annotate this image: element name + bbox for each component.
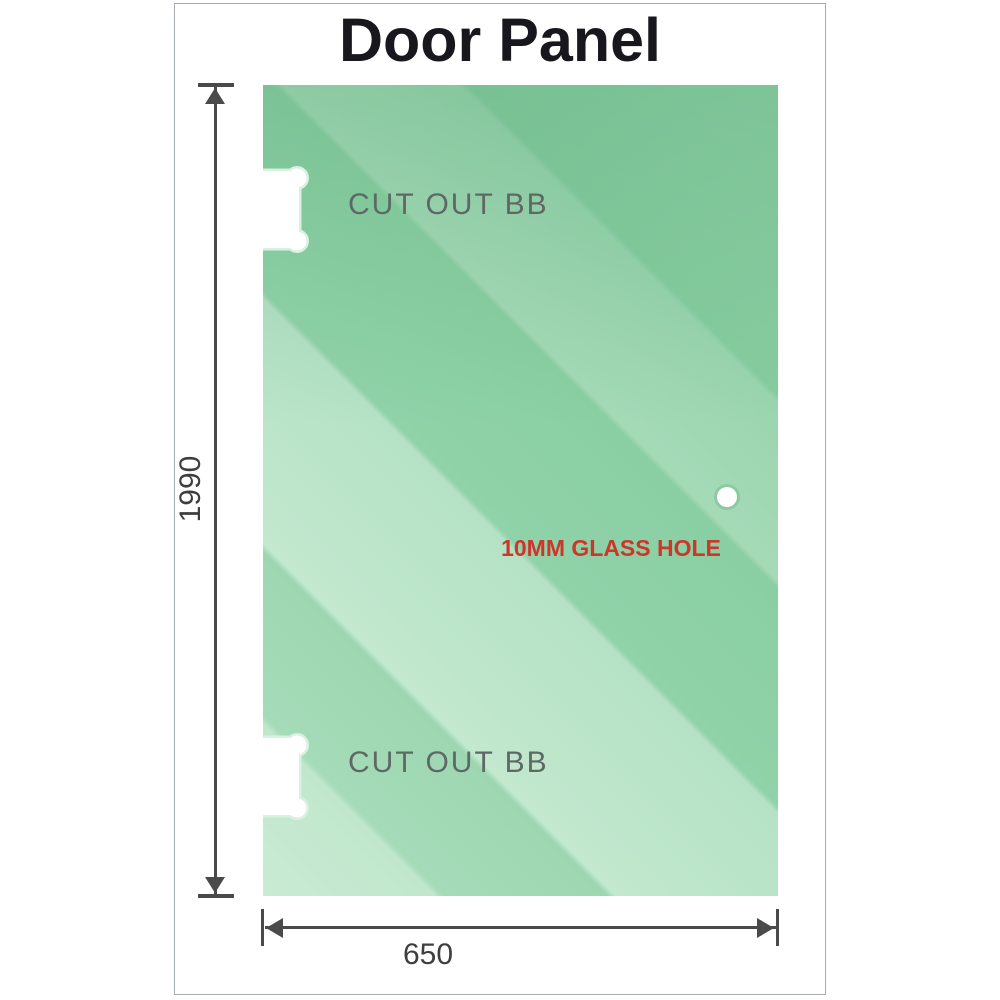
page-title: Door Panel [175,10,825,71]
hinge-cutout-bottom-icon [263,733,311,821]
arrow-up-icon [205,88,225,104]
arrow-right-icon [757,918,774,938]
width-value: 650 [403,940,453,970]
glass-hole-label: 10MM GLASS HOLE [501,537,721,560]
height-value: 1990 [176,456,206,523]
arrow-left-icon [266,918,283,938]
dimension-cap-bottom [198,894,234,898]
glass-hole-icon [717,487,737,507]
arrow-down-icon [205,877,225,893]
cutout-label-top: CUT OUT BB [348,190,549,220]
dimension-line-horizontal [265,926,776,929]
dimension-line-vertical [214,87,217,895]
dimension-tick-left [261,909,264,946]
hinge-cutout-top-icon [263,166,311,254]
diagram-canvas: Door Panel CUT OUT BB [0,0,1000,1000]
cutout-label-bottom: CUT OUT BB [348,748,549,778]
dimension-tick-right [776,909,779,946]
door-panel-glass: CUT OUT BB CUT OUT BB 10MM GLASS HOLE [263,85,778,896]
